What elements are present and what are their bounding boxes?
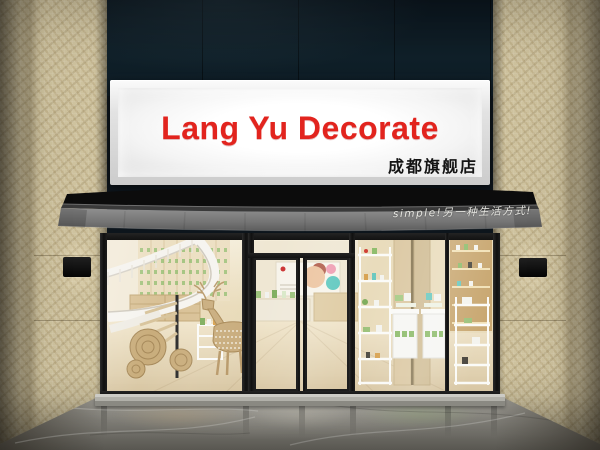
threshold-step [95, 394, 505, 406]
sign-title: Lang Yu Decorate [161, 110, 439, 155]
storefront-left-stile [100, 233, 107, 398]
storefront-glazing [100, 233, 500, 398]
tile-seam [493, 320, 566, 321]
storefront-right-stile [493, 233, 500, 398]
wall-lamp-right [519, 258, 547, 277]
wall-lamp-left [63, 257, 91, 277]
window-mullion [445, 233, 449, 398]
entrance-door-left [254, 258, 298, 391]
tile-seam [34, 320, 107, 321]
entrance-door-right [305, 258, 349, 391]
door-meeting-stile [298, 258, 300, 391]
storefront-render: Lang Yu Decorate 成都旗舰店 [0, 0, 600, 450]
shop-signboard: Lang Yu Decorate 成都旗舰店 [110, 80, 490, 185]
sign-subtitle: 成都旗舰店 [388, 153, 478, 177]
